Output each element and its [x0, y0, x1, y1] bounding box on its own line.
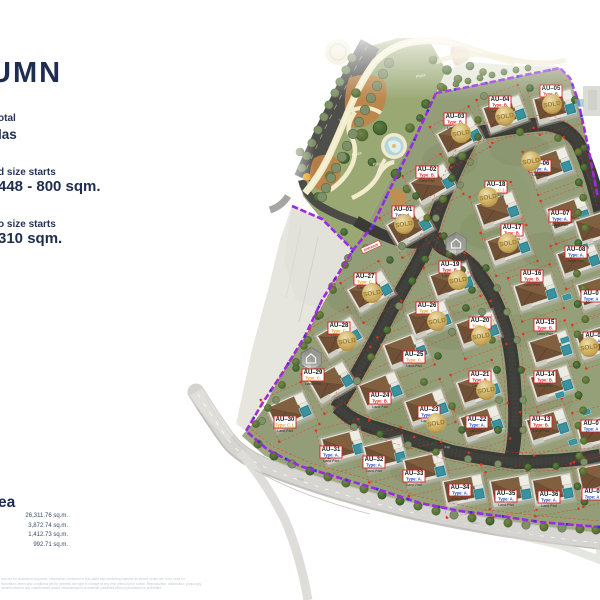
svg-text:Type: A: Type: A — [584, 297, 599, 302]
svg-text:Type: C.: Type: C. — [305, 376, 321, 381]
svg-text:Type: C.: Type: C. — [406, 358, 422, 363]
svg-text:Type: B.: Type: B. — [524, 277, 540, 282]
svg-text:Land Plot: Land Plot — [498, 503, 514, 507]
svg-text:Type: A: Type: A — [585, 495, 600, 500]
svg-text:Type: B.: Type: B. — [533, 423, 549, 428]
svg-text:Land Plot: Land Plot — [537, 384, 553, 388]
svg-text:Type: B.: Type: B. — [537, 326, 553, 331]
svg-text:Land Plot: Land Plot — [532, 173, 548, 177]
svg-text:Land Plot: Land Plot — [469, 429, 485, 433]
svg-text:Land Plot: Land Plot — [406, 483, 422, 487]
svg-text:Type: A.: Type: A. — [452, 491, 468, 496]
svg-text:Type: A.: Type: A. — [552, 217, 568, 222]
svg-text:Land Plot: Land Plot — [524, 283, 540, 287]
svg-text:Type: A.: Type: A. — [498, 497, 514, 502]
svg-text:Land Plot: Land Plot — [568, 259, 584, 263]
svg-text:Land Plot: Land Plot — [406, 364, 422, 368]
svg-text:Type: A.: Type: A. — [568, 253, 584, 258]
svg-text:Land Plot: Land Plot — [419, 179, 435, 183]
svg-text:Land Plot: Land Plot — [452, 497, 468, 501]
svg-text:Type: A.: Type: A. — [323, 453, 339, 458]
svg-text:SHOW UNIT: SHOW UNIT — [304, 366, 318, 369]
svg-text:Land Plot: Land Plot — [323, 459, 339, 463]
svg-text:Land Plot: Land Plot — [305, 382, 321, 386]
svg-text:Land Plot: Land Plot — [537, 332, 553, 336]
svg-text:Land Plot: Land Plot — [372, 405, 388, 409]
svg-text:Type: A.: Type: A. — [406, 477, 422, 482]
svg-text:Land Plot: Land Plot — [533, 429, 549, 433]
svg-text:Land Plot: Land Plot — [541, 504, 557, 508]
svg-text:Land Plot: Land Plot — [552, 223, 568, 227]
svg-text:Type: A.: Type: A. — [366, 463, 382, 468]
svg-text:Type: A.: Type: A. — [541, 498, 557, 503]
svg-text:SHOW UNIT: SHOW UNIT — [449, 251, 463, 254]
svg-text:4.00: 4.00 — [444, 445, 450, 450]
svg-text:Land Plot: Land Plot — [366, 469, 382, 473]
svg-text:Type: A: Type: A — [584, 427, 599, 432]
svg-text:Type: A.: Type: A. — [469, 423, 485, 428]
svg-text:Type: B.: Type: B. — [372, 399, 388, 404]
svg-text:Type: B.: Type: B. — [419, 173, 435, 178]
svg-text:Type: B.: Type: B. — [537, 378, 553, 383]
svg-text:Land Plot: Land Plot — [277, 429, 293, 433]
svg-text:Type: C.1.: Type: C.1. — [275, 423, 294, 428]
